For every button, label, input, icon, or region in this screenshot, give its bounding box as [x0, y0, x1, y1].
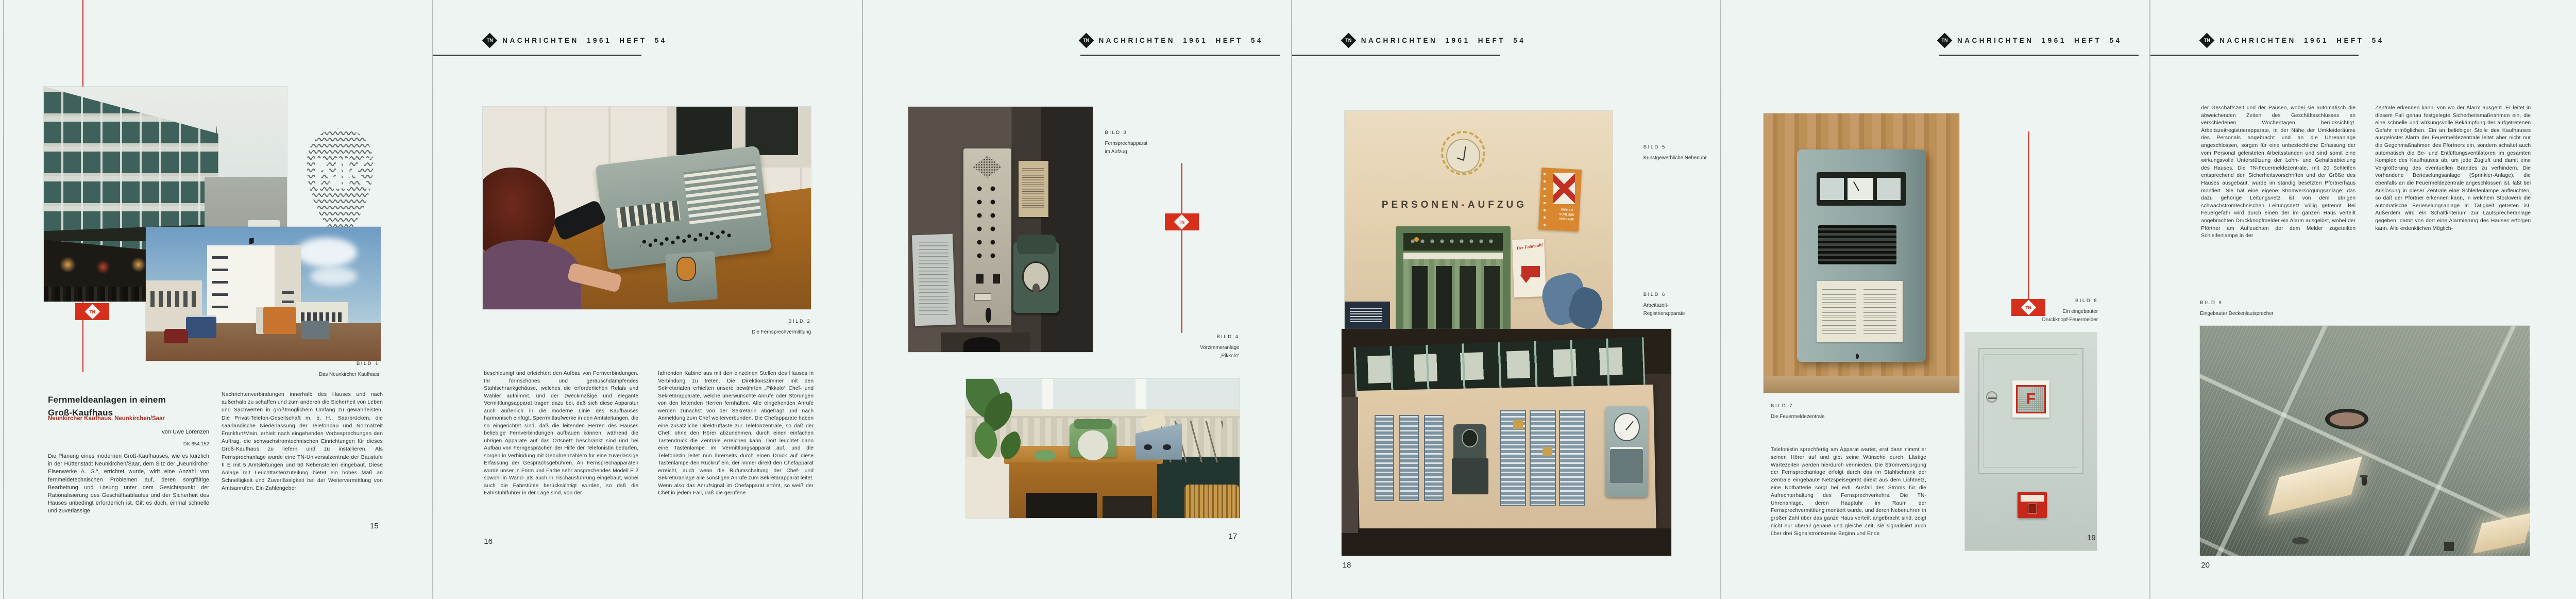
tn-monogram: TN	[1342, 34, 1355, 47]
page-number: 19	[2087, 534, 2096, 542]
journal-masthead: TN NACHRICHTEN 1961 HEFT 54	[1079, 32, 1264, 48]
bild-5-caption: BILD 5 Kunstgewerbliche Nebenuhr	[1643, 144, 1713, 162]
tn-diamond-icon: TN	[1079, 34, 1093, 47]
page-number: 17	[1229, 532, 1238, 541]
poster-text: WINTER SCHLUSS VERKAUF	[1553, 208, 1581, 223]
journal-spread: NK TN BILD 1 Das Neunkircher Kaufhaus	[0, 0, 2576, 599]
tn-monogram: TN	[2200, 34, 2214, 47]
page-number: 16	[484, 537, 493, 546]
bild-1-photo-building-yard	[146, 227, 381, 361]
masthead-rule	[433, 55, 641, 56]
scan-edge	[1720, 0, 1721, 599]
tn-diamond-icon: TN	[483, 34, 497, 47]
body-column-2: Zentrale erkennen kann, von wo der Alarm…	[2375, 105, 2531, 232]
lamp-window	[1877, 178, 1901, 200]
masthead-rule	[1080, 55, 1280, 56]
scan-edge	[3, 0, 4, 599]
tn-red-badge: TN	[2011, 299, 2045, 316]
personen-aufzug-lettering: PERSONEN-AUFZUG	[1377, 199, 1532, 211]
tn-diamond-icon: TN	[2200, 34, 2214, 47]
masthead-text: NACHRICHTEN 1961 HEFT 54	[1361, 37, 1526, 44]
door-window	[1436, 266, 1452, 332]
bild-9-photo-ceiling-speaker	[2200, 326, 2530, 556]
journal-masthead: TN NACHRICHTEN 1961 HEFT 54	[2200, 32, 2384, 48]
bild-label: BILD 5	[1643, 144, 1713, 150]
bild-label: BILD 2	[679, 319, 811, 324]
deco	[993, 274, 1000, 284]
deco	[1026, 493, 1097, 518]
telephone-handset	[1017, 235, 1056, 254]
door-window	[1484, 266, 1500, 332]
page-20: TN NACHRICHTEN 1961 HEFT 54 der Geschäft…	[2146, 0, 2575, 599]
bild-label: BILD 1	[247, 361, 379, 367]
masthead-rule	[2150, 55, 2359, 56]
bild-caption-text: im Aufzug	[1105, 148, 1208, 156]
bild-caption-text: Die Fernsprechvermittlung	[679, 328, 811, 337]
bild-caption-text: Druckknopf-Feuermelder	[1966, 316, 2098, 324]
bild-6-caption: BILD 6 Arbeitszeit- Registrierapparate	[1643, 292, 1713, 318]
card-rack	[1399, 415, 1419, 501]
keyhole	[986, 308, 991, 323]
deco	[1543, 447, 1552, 456]
bild-caption-text: „Pikkolo“	[1108, 352, 1240, 360]
window-frame	[1136, 379, 1146, 412]
deco	[1462, 429, 1478, 447]
scan-edge	[432, 0, 433, 599]
tn-monogram: TN	[1938, 34, 1952, 47]
sprinkler-head	[2362, 477, 2367, 486]
deco	[1163, 444, 1171, 450]
door-window	[1460, 266, 1476, 332]
bild-8-photo-push-button-alarm: F	[1965, 332, 2097, 551]
masthead-text: NACHRICHTEN 1961 HEFT 54	[2219, 37, 2384, 44]
page-17: TN NACHRICHTEN 1961 HEFT 54 BILD 3	[859, 0, 1288, 599]
tn-roof-flag	[249, 238, 254, 244]
page-number: 20	[2201, 561, 2210, 570]
truck	[256, 307, 296, 334]
bild-label: BILD 6	[1643, 292, 1713, 297]
floor	[1342, 528, 1671, 556]
deco	[2444, 542, 2454, 551]
cloud	[296, 238, 358, 267]
scan-edge	[862, 0, 863, 599]
bild-caption-text: Die Feuermeldezentrale	[1771, 413, 1900, 421]
red-accent-line	[2028, 131, 2029, 309]
nk-monogram: NK	[312, 149, 372, 199]
red-x-mark	[1553, 173, 1575, 204]
tn-monogram: TN	[1165, 213, 1199, 230]
tn-monogram: TN	[75, 303, 109, 320]
journal-masthead: TN NACHRICHTEN 1961 HEFT 54	[1938, 32, 2122, 48]
clock-face	[1614, 413, 1640, 441]
keyhole	[1856, 354, 1859, 359]
wicker-basket	[1184, 485, 1239, 518]
deco	[1541, 171, 1552, 228]
bild-caption-text: Registrierapparate	[1643, 310, 1713, 318]
page-15: NK TN BILD 1 Das Neunkircher Kaufhaus	[0, 0, 429, 599]
deco	[150, 291, 197, 307]
deco	[2021, 495, 2044, 502]
bild-caption-text: Kunstgewerbliche Nebenuhr	[1643, 154, 1713, 162]
bild-7-photo-fire-alarm-center	[1764, 113, 1959, 393]
journal-masthead: TN NACHRICHTEN 1961 HEFT 54	[483, 32, 667, 48]
title-line-1: Fernmeldeanlagen in einem	[48, 395, 166, 405]
truck	[301, 321, 329, 339]
key-field-light	[683, 163, 761, 224]
alarm-button	[2028, 504, 2037, 513]
fire-alarm-f-box: F	[2016, 385, 2046, 413]
microphone	[676, 257, 696, 281]
masthead-rule	[1292, 55, 1500, 56]
bild-caption-text: Fernsprechapparat	[1105, 140, 1208, 148]
tn-red-badge: TN	[75, 303, 109, 320]
body-column-2: fahrenden Kabine aus mit den einzelnen S…	[658, 370, 814, 497]
bild-6-photo-time-recorders	[1342, 329, 1671, 556]
window	[676, 107, 732, 155]
floor-indicator-lamps	[1408, 236, 1499, 247]
deco	[974, 293, 991, 301]
page-number: 18	[1343, 561, 1351, 570]
bild-7-caption: BILD 7 Die Feuermeldezentrale	[1771, 403, 1900, 421]
deco	[976, 274, 984, 284]
article-byline: von Uwe Lorenzen	[48, 429, 209, 435]
deco	[1342, 397, 1358, 533]
tn-monogram: TN	[2011, 299, 2045, 316]
lit-lamp	[1414, 237, 1419, 242]
deco	[963, 337, 1001, 352]
meter-window	[1848, 178, 1873, 200]
tn-monogram: TN	[1079, 34, 1093, 47]
tn-diamond-icon: TN	[1938, 34, 1952, 47]
body-column-2: Nachrichtenverbindungen innerhalb des Ha…	[222, 391, 383, 493]
deco	[1521, 266, 1540, 277]
deco	[1988, 397, 1996, 399]
masthead-rule	[1939, 55, 2139, 56]
tile-joints	[2200, 326, 2530, 556]
bild-9-caption: BILD 9 Eingebauter Deckenlautsprecher	[2200, 300, 2334, 318]
bild-caption-text: Vorzimmeranlage	[1108, 344, 1240, 352]
scan-edge	[1291, 0, 1292, 599]
bild-caption-text: Arbeitszeit-	[1643, 302, 1713, 310]
operator-shoulder	[483, 240, 581, 309]
deco	[2292, 537, 2309, 544]
bild-4-photo-pikkolo	[966, 379, 1240, 518]
deco	[1822, 289, 1856, 334]
rotary-dial	[1078, 430, 1108, 460]
deco	[919, 242, 948, 315]
body-column-1: beschleunigt und erleichtert den Aufbau …	[484, 370, 638, 497]
deco	[1022, 168, 1044, 210]
bild-1-caption: BILD 1 Das Neunkircher Kaufhaus	[247, 361, 379, 379]
page-16: TN NACHRICHTEN 1961 HEFT 54 BILD 2 Die F…	[429, 0, 858, 599]
floor	[1764, 376, 1959, 393]
deco	[1513, 420, 1523, 429]
door-window	[1412, 266, 1428, 332]
stamp-slot	[1610, 447, 1643, 483]
bild-3-caption: BILD 3 Fernsprechapparat im Aufzug	[1105, 130, 1208, 156]
deco	[1144, 444, 1152, 450]
deco	[1863, 289, 1897, 334]
body-column-1: Telefonistin sprechfertig am Apparat war…	[1771, 446, 1926, 538]
tn-diamond-icon: TN	[1342, 34, 1355, 47]
tn-red-badge: TN	[1165, 213, 1199, 230]
car	[164, 329, 188, 344]
bild-label: BILD 9	[2200, 300, 2334, 306]
card-rack	[1530, 410, 1556, 506]
deco	[2360, 475, 2368, 478]
card-rack	[1559, 410, 1585, 506]
bild-3-photo-elevator-phone	[908, 107, 1093, 352]
deco	[1103, 496, 1152, 518]
body-column-1: der Geschäftszeit und der Pausen, wobei …	[2201, 105, 2355, 240]
window-frame	[1042, 379, 1053, 412]
page-19: TN NACHRICHTEN 1961 HEFT 54 TN BILD 8 Ei…	[1717, 0, 2146, 599]
telephone-handset	[1074, 419, 1112, 429]
page-number: 15	[370, 522, 379, 530]
article-subtitle: Neunkircher Kaufhaus, Neunkirchen/Saar	[48, 415, 210, 422]
delivery-van	[186, 315, 216, 338]
journal-masthead: TN NACHRICHTEN 1961 HEFT 54	[1342, 32, 1526, 48]
dial-base	[1034, 450, 1056, 461]
body-column-1: Die Planung eines modernen Groß-Kaufhaus…	[48, 453, 209, 515]
bild-label: BILD 3	[1105, 130, 1208, 136]
scan-edge	[2149, 0, 2150, 599]
ventilation-slats	[1818, 225, 1896, 264]
bild-caption-text: Eingebauter Deckenlautsprecher	[2200, 310, 2334, 318]
deco	[1403, 253, 1502, 259]
bild-4-caption: BILD 4 Vorzimmeranlage „Pikkolo“	[1108, 334, 1240, 360]
masthead-text: NACHRICHTEN 1961 HEFT 54	[1099, 37, 1264, 44]
deco	[212, 256, 228, 310]
masthead-text: NACHRICHTEN 1961 HEFT 54	[1957, 37, 2122, 44]
masthead-text: NACHRICHTEN 1961 HEFT 54	[502, 37, 667, 44]
panel-buttons	[974, 183, 1000, 267]
deco	[1452, 458, 1488, 494]
lamp-window	[1820, 178, 1844, 200]
bild-label: BILD 4	[1108, 334, 1240, 340]
tn-monogram: TN	[483, 34, 497, 47]
bild-label: BILD 7	[1771, 403, 1900, 409]
dk-classification: DK 654.152	[48, 441, 209, 447]
red-accent-line	[1181, 163, 1182, 333]
deco	[1350, 308, 1382, 324]
bild-2-caption: BILD 2 Die Fernsprechvermittlung	[679, 319, 811, 337]
page-18: TN NACHRICHTEN 1961 HEFT 54 PERSONEN-AUF…	[1288, 0, 1717, 599]
ceiling-speaker	[2328, 411, 2366, 428]
card-rack	[1375, 415, 1394, 501]
bild-5-photo-elevator-hall: PERSONEN-AUFZUG WINTER SCHLUSS VERKAUF D…	[1345, 111, 1613, 332]
card-rack	[1424, 415, 1444, 501]
bild-caption-text: Das Neunkircher Kaufhaus	[247, 371, 379, 379]
bild-2-photo-switchboard	[483, 107, 811, 309]
